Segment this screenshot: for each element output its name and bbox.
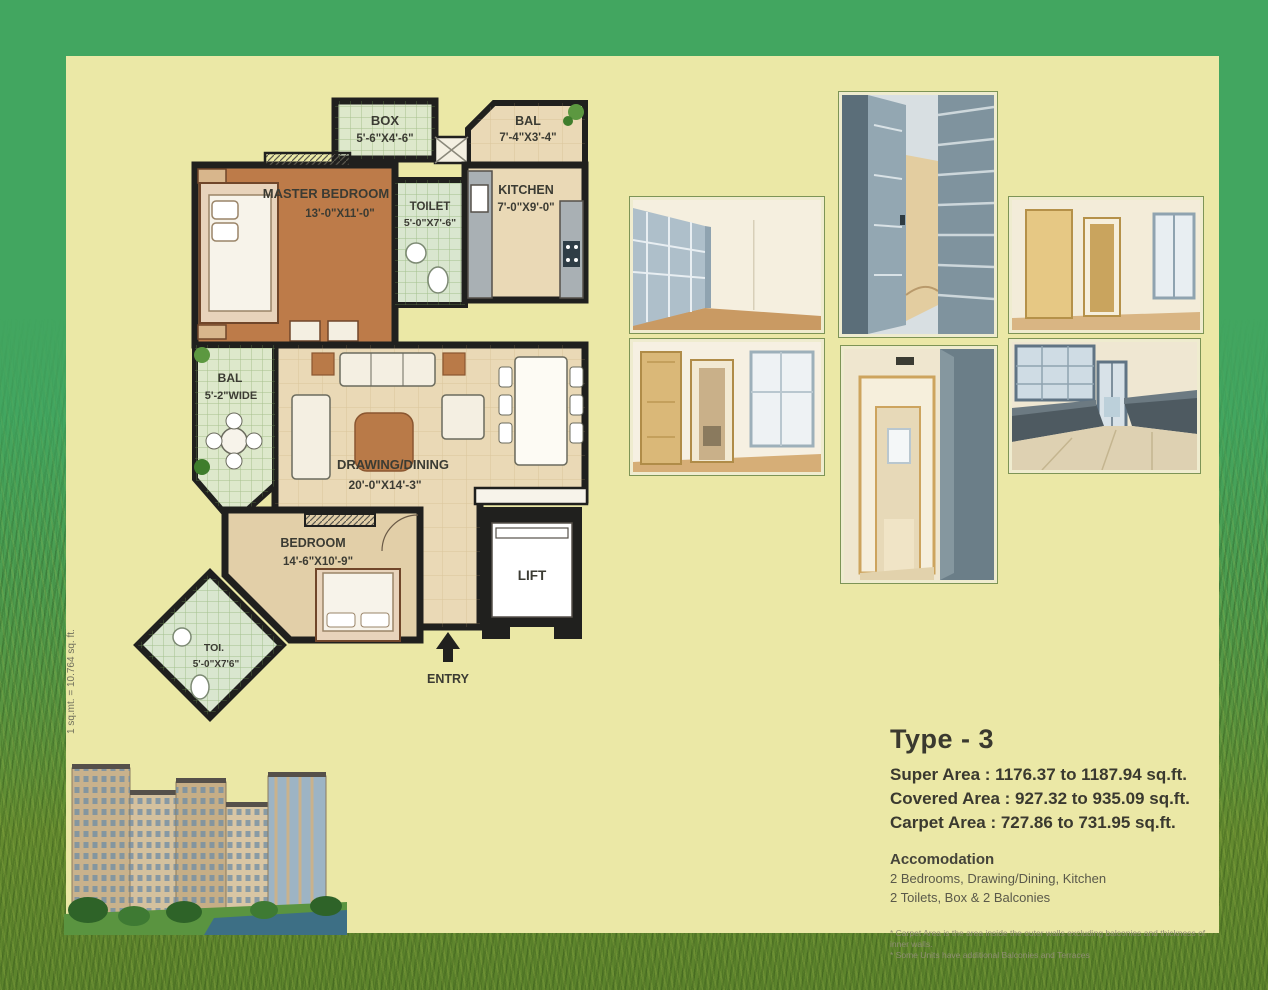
photo-room-open-door	[630, 339, 824, 475]
wardrobe	[265, 153, 350, 166]
tree	[250, 901, 278, 919]
room-label: BAL	[515, 114, 541, 128]
room-dim: 5'-0"X7'6"	[193, 659, 240, 670]
tree	[118, 906, 150, 926]
room-label: BOX	[371, 113, 400, 128]
side-table	[198, 325, 226, 339]
specs-block: Type - 3 Super Area : 1176.37 to 1187.94…	[890, 724, 1225, 961]
room-dim: 7'-4"X3'-4"	[499, 132, 556, 144]
entry-label: ENTRY	[427, 672, 470, 686]
conversion-note: 1 sq.mt. = 10.764 sq. ft.	[66, 582, 82, 734]
wardrobe	[305, 514, 375, 526]
stool	[290, 321, 320, 341]
room-label: BAL	[218, 371, 243, 385]
footnote: * Carpet Area is the area inside the out…	[890, 928, 1225, 950]
room-dim: 7'-0"X9'-0"	[497, 202, 554, 214]
room-kitchen: KITCHEN 7'-0"X9'-0"	[465, 165, 585, 300]
lift-label: LIFT	[518, 568, 547, 583]
building-render	[64, 752, 347, 935]
room-dim: 13'-0"X11'-0"	[305, 208, 374, 220]
brochure-page: { "note_vertical": "1 sq.mt. = 10.764 sq…	[0, 0, 1268, 990]
photo-corridor-doors	[841, 346, 997, 583]
photo-balcony-glass-door	[839, 92, 997, 337]
room-label: DRAWING/DINING	[337, 457, 449, 472]
room-dim: 5'-0"X7'-6"	[404, 217, 456, 229]
covered-area: Covered Area : 927.32 to 935.09 sq.ft.	[890, 787, 1225, 811]
room-dim: 5'-2"WIDE	[205, 390, 257, 402]
accommodation-block: Accomodation 2 Bedrooms, Drawing/Dining,…	[890, 851, 1225, 906]
accommodation-title: Accomodation	[890, 851, 1225, 868]
photo-kitchen-counters	[1009, 339, 1200, 473]
footnotes: * Carpet Area is the area inside the out…	[890, 928, 1225, 961]
room-label: MASTER BEDROOM	[263, 186, 389, 201]
tree	[68, 897, 108, 923]
room-label: TOI.	[204, 642, 224, 654]
plant-icon	[194, 347, 210, 363]
carpet-area: Carpet Area : 727.86 to 731.95 sq.ft.	[890, 811, 1225, 835]
double-bed	[200, 183, 278, 323]
room-dim: 20'-0"X14'-3"	[348, 478, 421, 492]
side-table	[198, 169, 226, 183]
super-area: Super Area : 1176.37 to 1187.94 sq.ft.	[890, 763, 1225, 787]
stool	[328, 321, 358, 341]
room-toilet: TOILET 5'-0"X7'-6"	[395, 180, 465, 305]
room-label: KITCHEN	[498, 183, 554, 197]
accommodation-line: 2 Bedrooms, Drawing/Dining, Kitchen	[890, 870, 1225, 887]
room-balcony-left: BAL 5'-2"WIDE	[194, 345, 275, 523]
entry-arrow-icon	[436, 632, 460, 649]
photo-room-with-window	[630, 197, 824, 333]
room-label: BEDROOM	[280, 536, 345, 550]
tree	[166, 901, 202, 923]
entry-marker: ENTRY	[427, 632, 470, 686]
floor-plan: BOX 5'-6"X4'-6" BAL 7'-4"X3'-4" MASTER B…	[130, 95, 600, 740]
photo-room-with-doors	[1009, 197, 1203, 333]
wc	[428, 267, 448, 293]
room-box: BOX 5'-6"X4'-6"	[335, 101, 435, 159]
plant-icon	[194, 459, 210, 475]
room-dim: 14'-6"X10'-9"	[283, 556, 353, 568]
double-bed	[316, 569, 400, 641]
side-table	[312, 353, 334, 375]
side-table	[443, 353, 465, 375]
room-balcony-top: BAL 7'-4"X3'-4"	[468, 103, 585, 165]
lift: LIFT	[475, 488, 587, 639]
sink	[471, 185, 488, 212]
accommodation-line: 2 Toilets, Box & 2 Balconies	[890, 889, 1225, 906]
tree	[310, 896, 342, 916]
type-title: Type - 3	[890, 724, 1225, 755]
washbasin	[406, 243, 426, 263]
room-dim: 5'-6"X4'-6"	[356, 133, 413, 145]
window-symbol	[435, 137, 468, 163]
hob	[563, 241, 580, 267]
washbasin	[173, 628, 191, 646]
wc	[191, 675, 209, 699]
footnote: * Some Units have additional Balconies a…	[890, 950, 1225, 961]
room-label: TOILET	[410, 201, 451, 213]
